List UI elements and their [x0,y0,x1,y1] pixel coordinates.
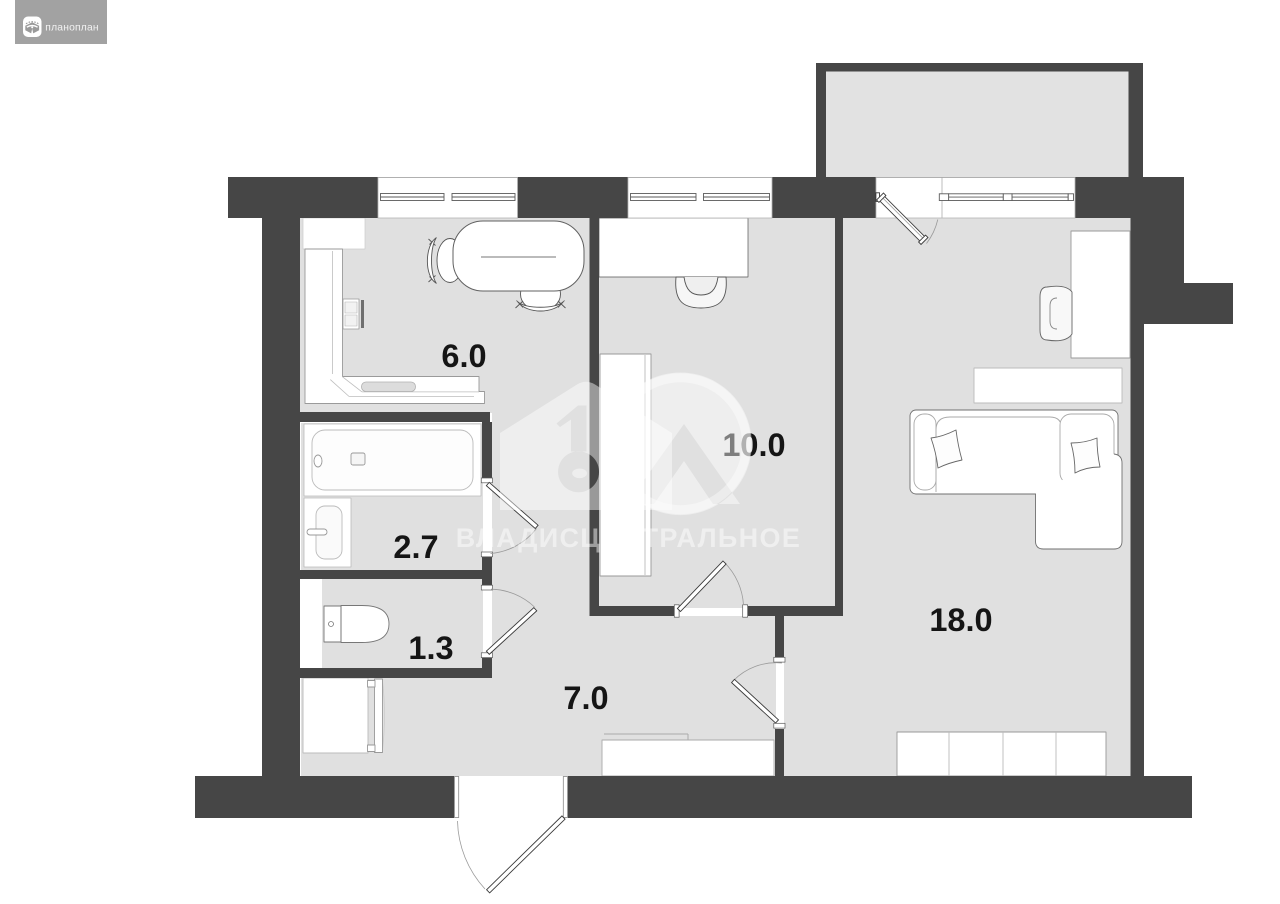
svg-text:2.7: 2.7 [393,529,438,565]
svg-text:7.0: 7.0 [563,680,608,716]
svg-text:6.0: 6.0 [441,338,486,374]
svg-text:1.3: 1.3 [408,630,453,666]
svg-text:ВЛАДИСЦЕНТРАЛЬНОЕ: ВЛАДИСЦЕНТРАЛЬНОЕ [456,523,801,553]
svg-text:18.0: 18.0 [929,602,992,638]
svg-text:планоплан: планоплан [45,22,99,33]
